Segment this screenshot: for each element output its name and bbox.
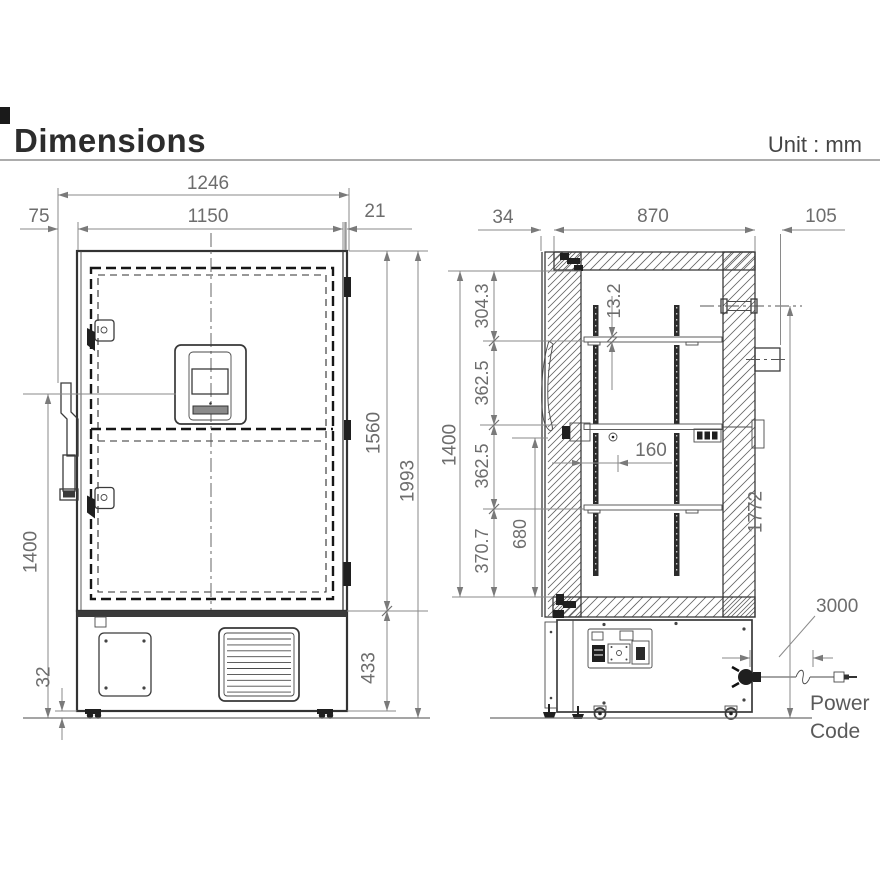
door-gasket-dashed [91, 268, 333, 599]
dim-side-interior-height: 1400 [440, 424, 461, 466]
dim-front-door-height: 1560 [364, 412, 385, 454]
dim-front-door-edge: 21 [364, 201, 385, 222]
page-title: Dimensions [14, 122, 206, 159]
side-view [542, 252, 857, 719]
dim-side-shelf-thickness: 13.2 [604, 283, 624, 318]
access-panel [99, 633, 151, 696]
door-handle [60, 383, 78, 500]
dim-front-base-height: 433 [359, 652, 380, 684]
shelf-top [584, 337, 722, 345]
dim-side-bottom-offset: 370.7 [472, 528, 492, 573]
dim-side-top-offset: 304.3 [472, 283, 492, 328]
dim-side-lower-height: 680 [510, 519, 530, 549]
machine-compartment-front [77, 611, 347, 711]
dim-side-body-depth: 870 [637, 206, 669, 227]
access-port [700, 299, 802, 313]
power-cord [732, 667, 857, 687]
rear-block [746, 348, 789, 371]
front-cabinet-outline [77, 251, 347, 611]
unit-label: Unit : mm [768, 132, 862, 157]
dim-front-handle-depth: 75 [28, 206, 49, 227]
electrical-panel [588, 629, 652, 668]
shelf-lower [584, 505, 722, 513]
dimension-lines [20, 188, 845, 740]
wall-hatching [548, 252, 755, 617]
dim-side-shelf-inset: 160 [635, 440, 667, 461]
dim-side-rear-clearance: 105 [805, 206, 837, 227]
cord-leader-line [779, 616, 815, 657]
power-plug [738, 669, 754, 685]
dimension-arrows [45, 192, 823, 728]
dim-front-foot-clearance: 32 [34, 666, 55, 687]
dim-front-total-height: 1993 [398, 460, 419, 502]
dim-side-cord-length: 3000 [816, 596, 858, 617]
dim-front-body-width: 1150 [188, 206, 229, 227]
front-view [60, 233, 351, 719]
power-cord-label-line2: Code [810, 720, 860, 743]
dim-side-door-thickness: 34 [492, 207, 514, 228]
dim-side-shelf-pitch-1: 362.5 [472, 360, 492, 405]
dim-side-port-height: 1772 [746, 491, 767, 533]
dimensions-drawing-page: Dimensions Unit : mm [0, 0, 880, 880]
control-panel [175, 345, 246, 424]
dim-front-total-width: 1246 [187, 173, 229, 194]
power-cord-label-line1: Power [810, 692, 870, 715]
dim-side-shelf-pitch-2: 362.5 [472, 443, 492, 488]
machine-compartment-side [545, 620, 752, 712]
control-panel-display [192, 369, 228, 394]
dim-front-handle-height: 1400 [21, 531, 42, 573]
page-edge-tab [0, 107, 10, 124]
ventilation-grille [219, 628, 299, 701]
dimensions-diagram: Dimensions Unit : mm [0, 0, 880, 880]
